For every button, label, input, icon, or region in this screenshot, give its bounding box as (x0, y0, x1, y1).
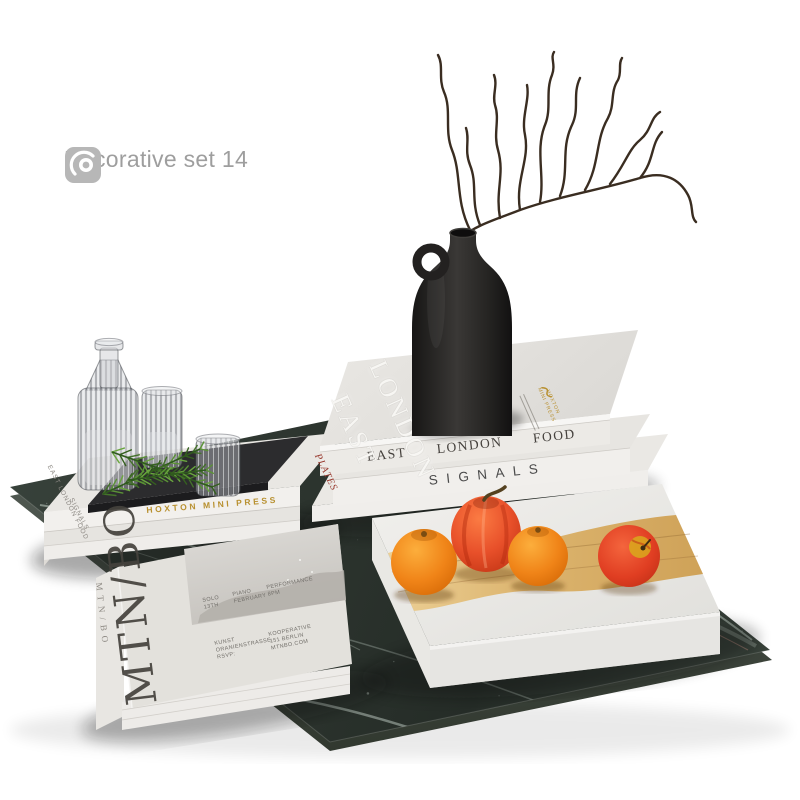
corona-renderer-logo-icon (64, 146, 102, 184)
glass-tumbler-back (142, 387, 182, 469)
tangerine-left (391, 529, 457, 595)
header: Decorative set 14 (64, 146, 248, 173)
tangerine-right (508, 526, 568, 586)
red-apple (598, 525, 660, 587)
glass-carafe (78, 338, 138, 490)
product-render-stage: Decorative set 14 EAST LONDON FOOD SIGNA… (0, 0, 800, 800)
